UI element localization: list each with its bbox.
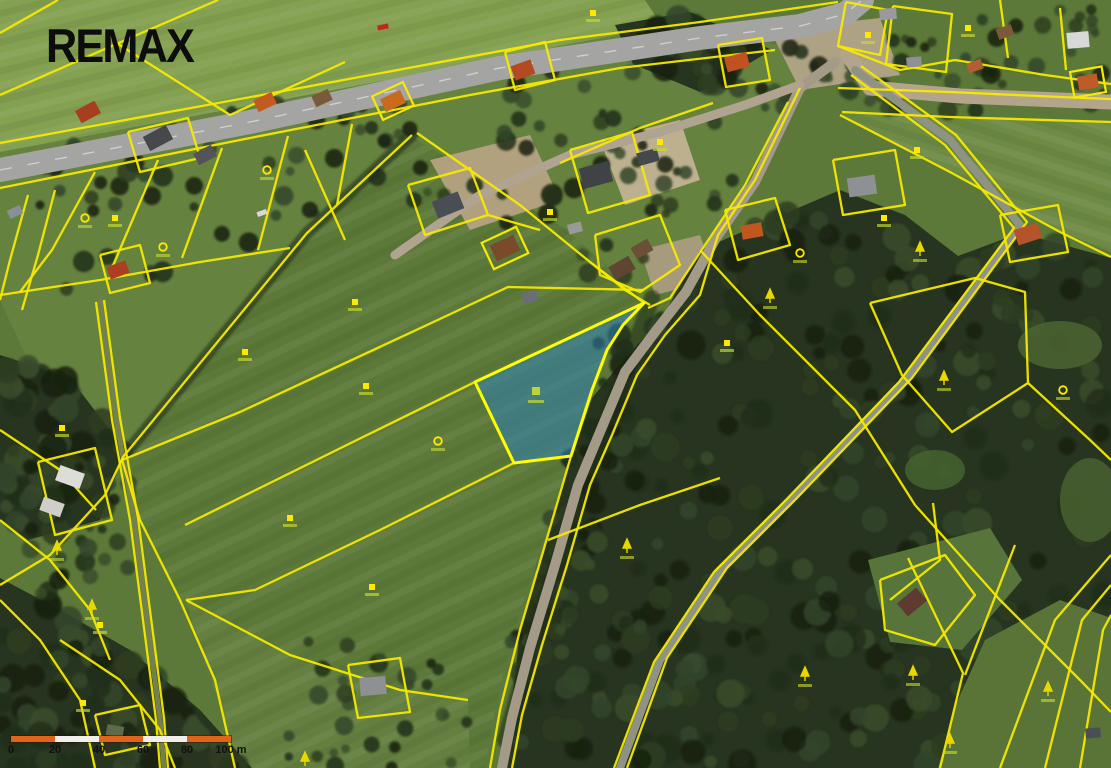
parcel-number-marker-icon [965,25,971,31]
parcel-number-marker-icon [242,349,248,355]
building [847,175,877,198]
parcel-number-marker-icon [97,622,103,628]
building [359,676,386,696]
scale-bar: 020406080100 m [11,736,251,766]
scale-label: 100 m [215,744,246,756]
parcel-number-marker-icon [865,32,871,38]
parcel-marker-icon [532,387,540,395]
parcel-number-marker-icon [547,209,553,215]
parcel-number-marker-icon [914,147,920,153]
parcel-number-marker-icon [724,340,730,346]
remax-logo: REMAX [46,22,193,69]
parcel-number-marker-icon [80,700,86,706]
listing-map: REMAX 020406080100 m [0,0,1111,768]
building [1085,727,1101,738]
parcel-number-marker-icon [363,383,369,389]
parcel-number-marker-icon [590,10,596,16]
parcel-number-marker-icon [881,215,887,221]
building [1066,31,1089,49]
scale-label: 60 [137,744,149,756]
parcel-number-marker-icon [369,584,375,590]
building [906,56,922,67]
parcel-number-marker-icon [287,515,293,521]
scale-label: 20 [49,744,61,756]
scale-label: 80 [181,744,193,756]
map-canvas[interactable] [0,0,1111,768]
parcel-number-marker-icon [112,215,118,221]
parcel-number-marker-icon [59,425,65,431]
building [879,8,897,20]
scale-label: 40 [93,744,105,756]
parcel-number-marker-icon [352,299,358,305]
scale-bar-labels: 020406080100 m [11,742,231,756]
scale-label: 0 [8,744,14,756]
parcel-number-marker-icon [657,139,663,145]
